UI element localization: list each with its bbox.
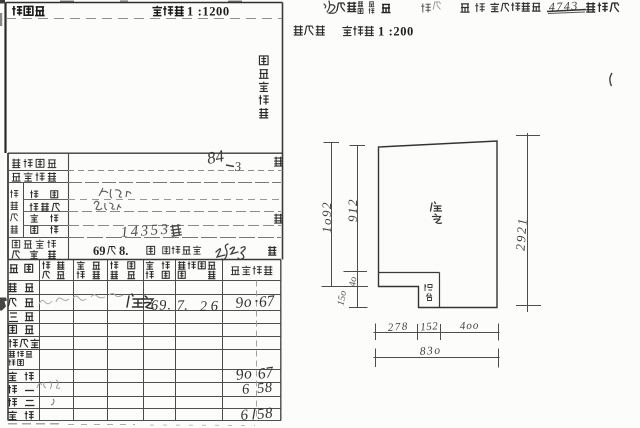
svg-text:67: 67 [258,292,276,311]
svg-text:1 :1200: 1 :1200 [187,5,230,19]
svg-text:912: 912 [345,198,360,222]
svg-text:9o: 9o [235,293,253,312]
svg-text:83o: 83o [419,345,442,358]
svg-text:69.: 69. [151,297,173,314]
svg-text:58: 58 [256,405,274,423]
svg-text:58: 58 [256,379,273,397]
svg-text:8.: 8. [119,244,128,258]
svg-text:69: 69 [93,244,106,258]
svg-text:4o: 4o [348,276,360,287]
svg-text:4oo: 4oo [460,319,480,332]
svg-text:7.: 7. [177,298,188,314]
svg-text:278: 278 [387,321,409,334]
svg-text:1o92: 1o92 [319,201,334,233]
svg-text:2921: 2921 [513,216,530,251]
svg-text:2 6: 2 6 [200,298,219,315]
svg-text:152: 152 [420,320,439,333]
svg-text:1 :200: 1 :200 [378,25,414,39]
